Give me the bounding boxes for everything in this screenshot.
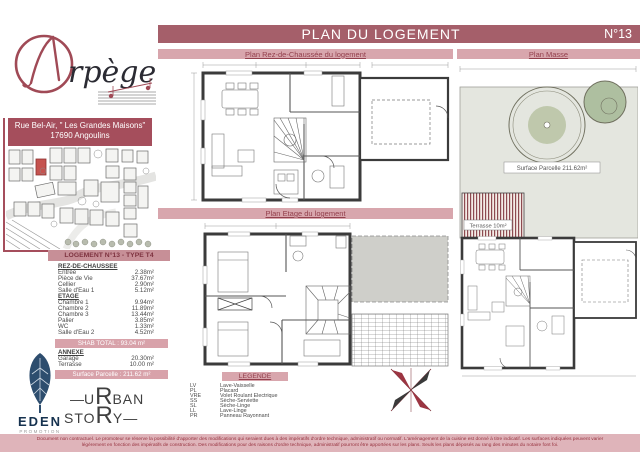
- legend-list: LVLave-Vaisselle PLPlacard VREVolet Roul…: [190, 384, 330, 419]
- eden-logo-text: EDEN: [12, 414, 68, 429]
- terrace-area: [462, 193, 524, 238]
- section-bar-masse-label: Plan Masse: [529, 50, 568, 59]
- header-bar: PLAN DU LOGEMENT N°13: [158, 25, 640, 43]
- plan-rdc: [186, 60, 454, 205]
- section-bar-masse: Plan Masse: [457, 49, 640, 59]
- plan-rdc-drawing: [186, 60, 454, 205]
- legend-label: Panneau Rayonnant: [220, 414, 269, 419]
- eden-leaf-icon: [12, 352, 68, 414]
- urban-r2: R: [96, 407, 113, 425]
- terrace-label: Terrasse 10m²: [469, 224, 506, 230]
- room-label: Salle d'Eau 2: [58, 330, 94, 336]
- section-bar-etage-label: Plan Etage du logement: [265, 209, 345, 218]
- site-map: [6, 146, 156, 249]
- page-title: PLAN DU LOGEMENT: [158, 26, 604, 42]
- legend-title: LEGENDE: [239, 373, 271, 380]
- room-area: 10.00 m²: [130, 362, 154, 368]
- section-bar-etage: Plan Etage du logement: [158, 208, 453, 219]
- disclaimer-line2: légèrement en fonction des impératifs de…: [0, 443, 640, 449]
- plan-masse-drawing: Surface Parcelle 211.62m² Terrasse 10m²: [458, 64, 638, 380]
- urban-ban: BAN: [112, 391, 144, 407]
- lot-number: N°13: [604, 27, 632, 41]
- room-area: 4.52m²: [135, 330, 154, 336]
- areas-table: REZ-DE-CHAUSSEE Entrée2.38m² Pièce de Vi…: [58, 264, 154, 336]
- address-line1: Rue Bel-Air, " Les Grandes Maisons": [8, 121, 152, 131]
- table-row: Terrasse10.00 m²: [58, 362, 154, 368]
- eden-logo: EDEN PROMOTION: [12, 352, 68, 432]
- annexe-table: ANNEXE Garage20.30m² Terrasse10.00 m²: [58, 350, 154, 368]
- room-area: 5.12m²: [135, 288, 154, 294]
- site-map-lot13-highlight: [36, 159, 46, 175]
- address-line2: 17690 Angoulins: [8, 131, 152, 141]
- plan-sheet: PLAN DU LOGEMENT N°13 Plan Rez-de-Chauss…: [0, 0, 640, 470]
- urban-u: U: [84, 391, 95, 407]
- urban-dash-left: —: [70, 391, 84, 407]
- urban-story-logo: — U R BAN STO R Y —: [64, 388, 166, 430]
- surface-parcelle: Surface Parcelle : 211.62 m²: [73, 371, 151, 378]
- plan-etage: [186, 222, 454, 370]
- section-bar-rdc-label: Plan Rez-de-Chaussée du logement: [245, 50, 366, 59]
- arpege-logo-icon: rpège: [8, 22, 158, 116]
- disclaimer-bar: Document non contractuel. Le promoteur s…: [0, 434, 640, 452]
- shab-total-bar: SHAB TOTAL : 93.04 m²: [55, 339, 168, 348]
- map-frame-vline: [3, 118, 5, 252]
- legend-item: PRPanneau Rayonnant: [190, 414, 330, 419]
- table-title-bar: LOGEMENT N°13 - TYPE T4: [48, 250, 170, 261]
- section-bar-rdc: Plan Rez-de-Chaussée du logement: [158, 49, 453, 59]
- plan-masse: Surface Parcelle 211.62m² Terrasse 10m²: [458, 64, 638, 380]
- legend-abbr: PR: [190, 414, 220, 419]
- urban-y: Y: [113, 410, 123, 426]
- shab-total: SHAB TOTAL : 93.04 m²: [78, 340, 145, 347]
- urban-sto: STO: [64, 410, 96, 426]
- legend-title-bar: LEGENDE: [222, 372, 288, 381]
- surface-parcelle-bar: Surface Parcelle : 211.62 m²: [55, 370, 168, 379]
- parcel-area-label: Surface Parcelle 211.62m²: [517, 166, 588, 172]
- site-map-drawing: [6, 146, 156, 249]
- arpege-logo: rpège: [8, 22, 158, 116]
- compass-rose-icon: [388, 366, 434, 414]
- address-banner: Rue Bel-Air, " Les Grandes Maisons" 1769…: [8, 118, 152, 146]
- urban-dash-right: —: [123, 410, 137, 426]
- table-row: Salle d'Eau 24.52m²: [58, 330, 154, 336]
- table-title: LOGEMENT N°13 - TYPE T4: [64, 252, 153, 259]
- plan-etage-drawing: [186, 222, 454, 370]
